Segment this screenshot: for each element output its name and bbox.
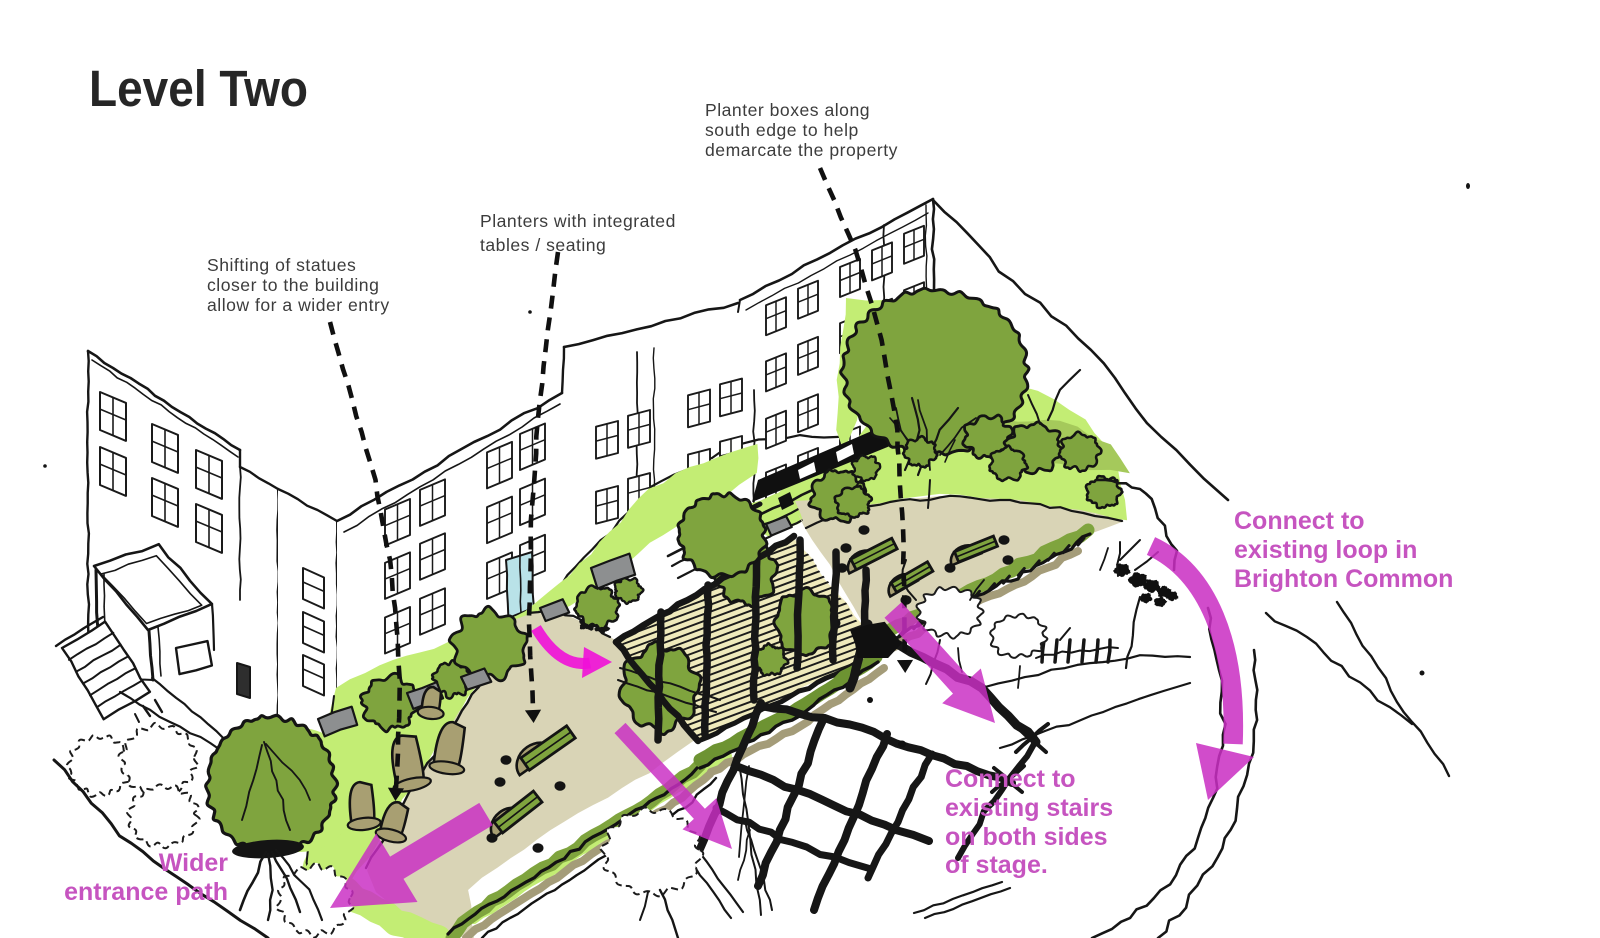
svg-text:on both sides: on both sides bbox=[945, 823, 1108, 851]
svg-text:Connect to: Connect to bbox=[1234, 507, 1365, 535]
svg-text:tables / seating: tables / seating bbox=[480, 235, 606, 255]
svg-text:Brighton Common: Brighton Common bbox=[1234, 565, 1453, 593]
svg-text:Planter boxes along: Planter boxes along bbox=[705, 100, 870, 120]
svg-text:entrance path: entrance path bbox=[64, 878, 228, 906]
svg-text:south edge to help: south edge to help bbox=[705, 120, 859, 140]
svg-text:Shifting of statues: Shifting of statues bbox=[207, 255, 356, 275]
svg-text:Wider: Wider bbox=[159, 849, 228, 877]
svg-text:allow for a wider entry: allow for a wider entry bbox=[207, 295, 390, 315]
svg-text:Planters with integrated: Planters with integrated bbox=[480, 211, 676, 231]
svg-text:Level Two: Level Two bbox=[89, 60, 308, 117]
svg-text:of stage.: of stage. bbox=[945, 851, 1048, 879]
svg-text:Connect to: Connect to bbox=[945, 765, 1076, 793]
svg-text:existing stairs: existing stairs bbox=[945, 794, 1113, 822]
svg-text:existing loop in: existing loop in bbox=[1234, 536, 1417, 564]
svg-text:demarcate the property: demarcate the property bbox=[705, 140, 898, 160]
svg-text:closer to the building: closer to the building bbox=[207, 275, 379, 295]
